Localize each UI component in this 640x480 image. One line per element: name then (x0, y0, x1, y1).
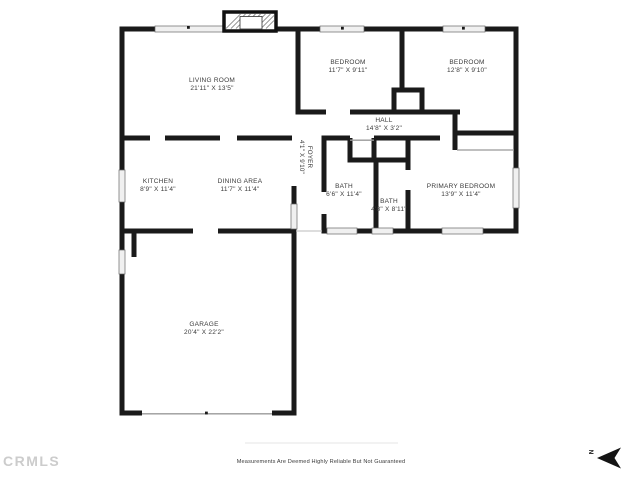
window (513, 168, 519, 208)
room-label-foyer: FOYER 4'1" X 9'10" (298, 140, 313, 174)
room-name: BATH (335, 183, 353, 190)
crmls-watermark: CRMLS (3, 453, 60, 469)
room-dims: 11'7" X 9'11" (328, 67, 367, 74)
room-label-bedroom-1: BEDROOM 11'7" X 9'11" (328, 59, 367, 74)
room-dims: 6'6" X 11'4" (326, 191, 362, 198)
exterior-walls (120, 27, 519, 416)
room-label-dining-area: DINING AREA 11'7" X 11'4" (218, 178, 263, 193)
window (291, 204, 297, 229)
room-dims: 4'1" X 9'10" (298, 140, 305, 174)
room-dims: 8'9" X 11'4" (140, 186, 176, 193)
room-label-kitchen: KITCHEN 8'9" X 11'4" (140, 178, 176, 193)
fireplace-icon (224, 12, 276, 31)
room-dims: 20'4" X 22'2" (184, 329, 224, 336)
window (372, 228, 393, 234)
window (155, 26, 225, 32)
disclaimer-text: Measurements Are Deemed Highly Reliable … (237, 459, 406, 465)
room-name: KITCHEN (143, 178, 173, 185)
north-label: N (587, 450, 594, 455)
room-label-hall: HALL 14'8" X 3'2" (366, 117, 403, 132)
wall-ticks (121, 26, 518, 414)
room-label-living-room: LIVING ROOM 21'11" X 13'5" (189, 77, 235, 92)
room-dims: 13'9" X 11'4" (441, 191, 481, 198)
window (442, 228, 483, 234)
room-dims: 11'7" X 11'4" (220, 186, 259, 193)
room-dims: 14'8" X 3'2" (366, 125, 403, 132)
room-name: FOYER (306, 146, 313, 169)
room-name: HALL (375, 117, 392, 124)
window (327, 228, 357, 234)
floor-plan-svg: LIVING ROOM 21'11" X 13'5" BEDROOM 11'7"… (0, 0, 640, 480)
room-name: PRIMARY BEDROOM (427, 183, 496, 190)
window (119, 250, 125, 274)
room-name: LIVING ROOM (189, 77, 235, 84)
north-arrow-shape (597, 448, 621, 469)
room-name: BEDROOM (330, 59, 365, 66)
walls (120, 27, 519, 416)
room-name: GARAGE (189, 321, 219, 328)
north-arrow-icon: N (587, 448, 621, 469)
room-label-bath-1: BATH 6'6" X 11'4" (326, 183, 362, 198)
floorplan-page: LIVING ROOM 21'11" X 13'5" BEDROOM 11'7"… (0, 0, 640, 480)
room-labels: LIVING ROOM 21'11" X 13'5" BEDROOM 11'7"… (140, 59, 495, 336)
room-name: DINING AREA (218, 178, 263, 185)
room-dims: 21'11" X 13'5" (190, 85, 234, 92)
room-label-garage: GARAGE 20'4" X 22'2" (184, 321, 224, 336)
door-lines (142, 140, 514, 414)
room-name: BATH (380, 198, 398, 205)
room-dims: 4'8" X 8'11" (371, 206, 407, 213)
room-dims: 12'8" X 9'10" (447, 67, 487, 74)
room-label-bedroom-2: BEDROOM 12'8" X 9'10" (447, 59, 487, 74)
room-label-primary-bedroom: PRIMARY BEDROOM 13'9" X 11'4" (427, 183, 496, 198)
room-name: BEDROOM (449, 59, 484, 66)
window (119, 170, 125, 202)
